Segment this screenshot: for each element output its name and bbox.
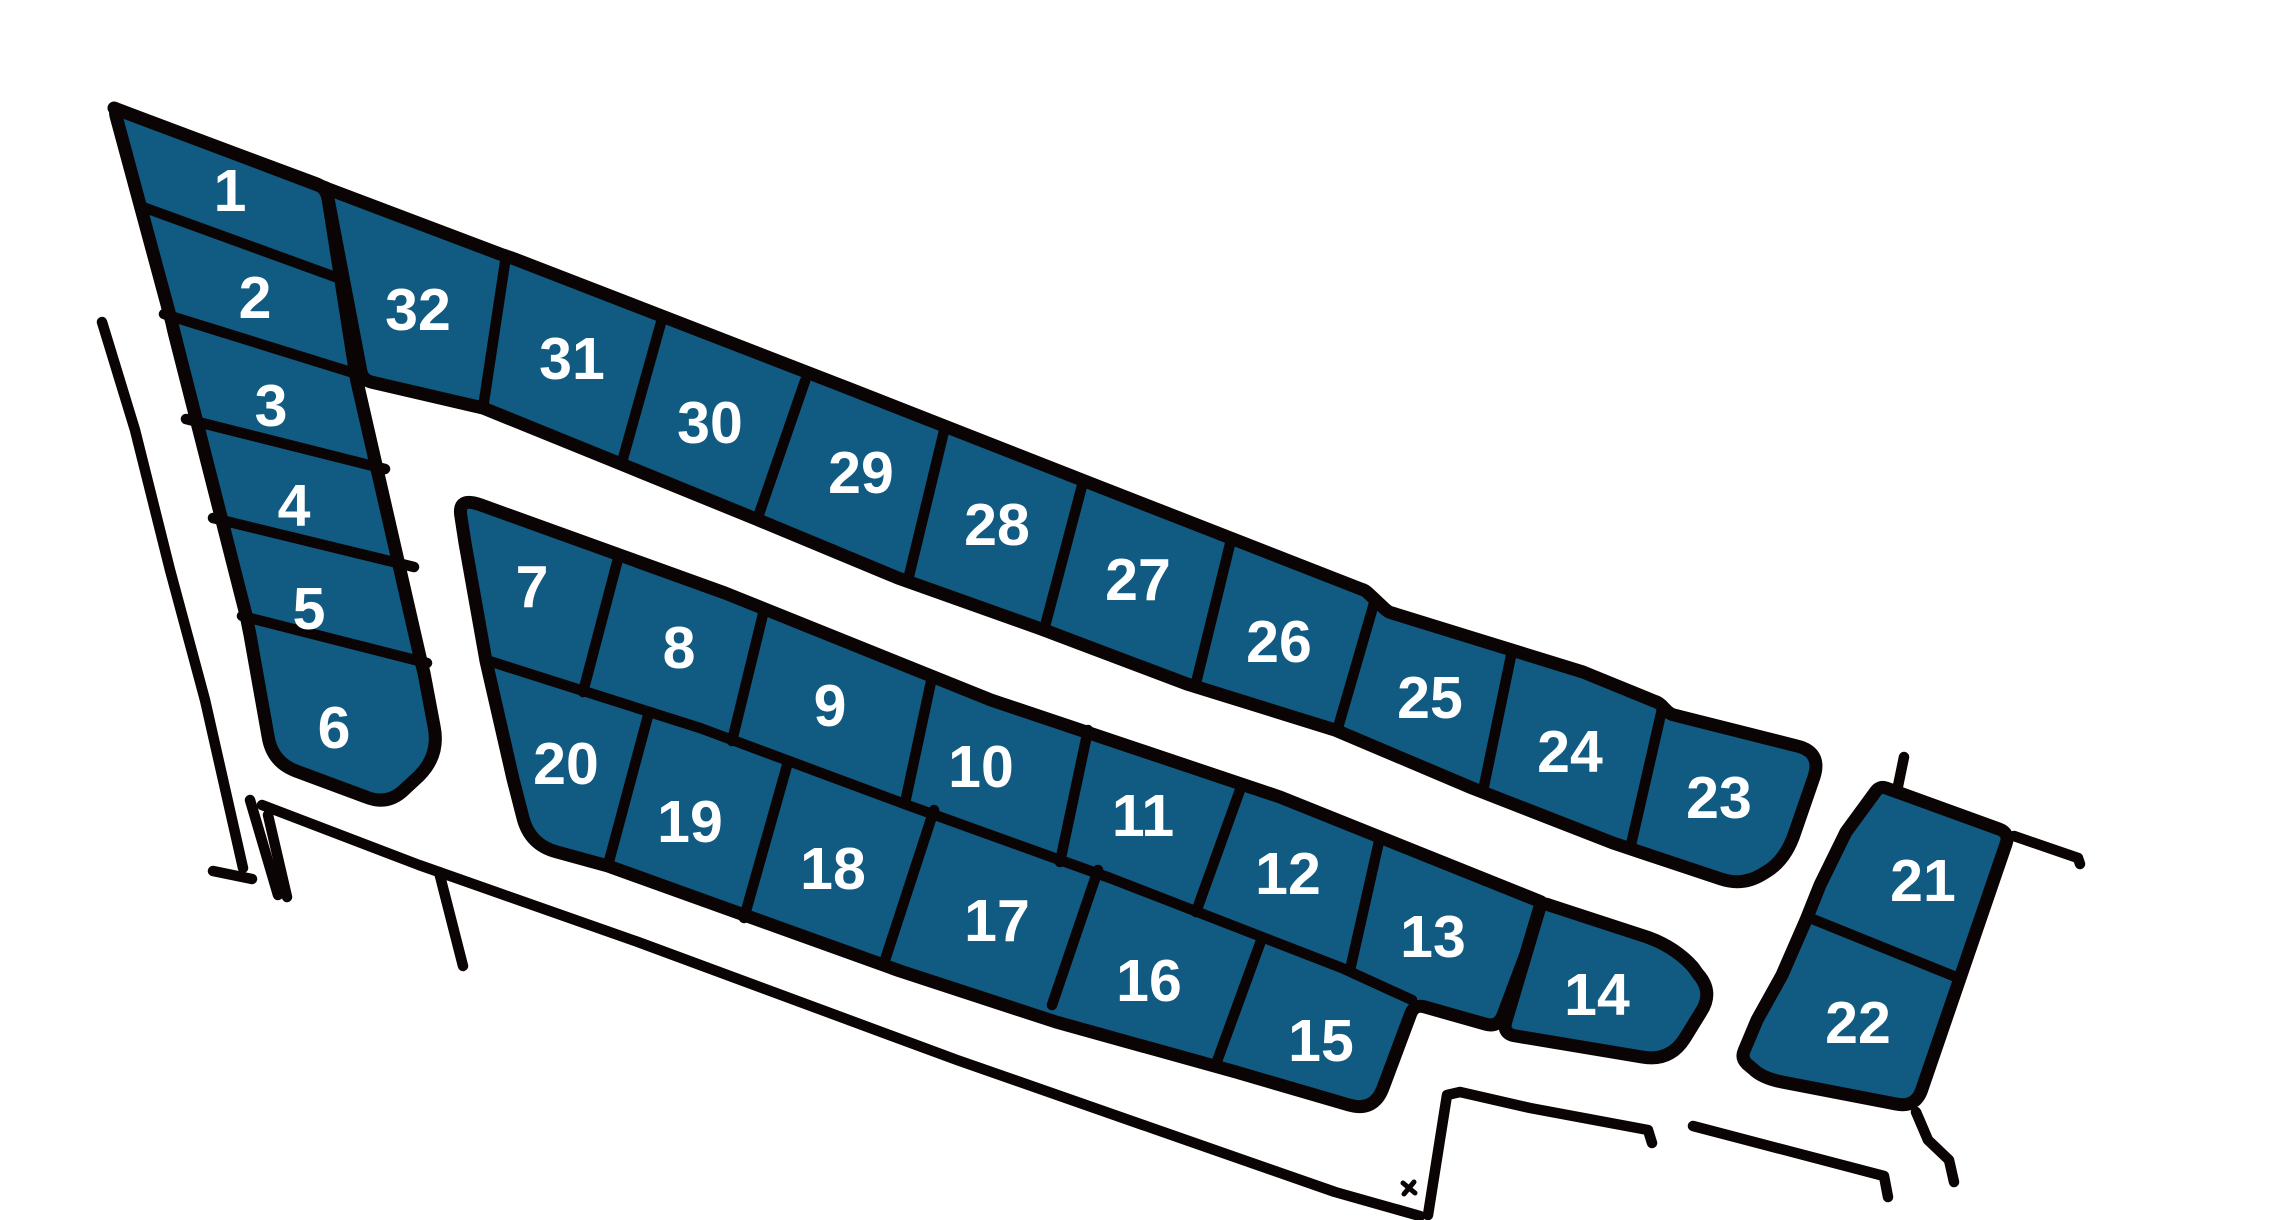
svg-text:26: 26 bbox=[1246, 609, 1312, 675]
svg-text:29: 29 bbox=[828, 440, 894, 506]
svg-text:22: 22 bbox=[1825, 990, 1891, 1056]
svg-text:7: 7 bbox=[516, 554, 549, 620]
svg-text:18: 18 bbox=[800, 836, 866, 902]
svg-text:17: 17 bbox=[964, 888, 1030, 954]
svg-text:6: 6 bbox=[318, 695, 351, 761]
svg-text:11: 11 bbox=[1112, 783, 1174, 849]
svg-text:12: 12 bbox=[1255, 841, 1321, 907]
svg-text:1: 1 bbox=[214, 158, 247, 224]
svg-text:3: 3 bbox=[255, 373, 288, 439]
svg-text:24: 24 bbox=[1537, 719, 1603, 785]
svg-text:10: 10 bbox=[948, 734, 1014, 800]
svg-text:2: 2 bbox=[239, 265, 272, 331]
svg-text:31: 31 bbox=[539, 326, 605, 392]
svg-text:15: 15 bbox=[1288, 1008, 1354, 1074]
svg-text:21: 21 bbox=[1890, 848, 1956, 914]
svg-text:14: 14 bbox=[1564, 962, 1630, 1028]
svg-text:20: 20 bbox=[533, 731, 599, 797]
svg-text:30: 30 bbox=[677, 390, 743, 456]
svg-text:19: 19 bbox=[657, 789, 723, 855]
svg-text:25: 25 bbox=[1397, 665, 1463, 731]
svg-text:8: 8 bbox=[663, 615, 696, 681]
svg-text:13: 13 bbox=[1400, 904, 1466, 970]
svg-text:27: 27 bbox=[1105, 547, 1171, 613]
svg-text:32: 32 bbox=[385, 277, 451, 343]
svg-text:23: 23 bbox=[1686, 765, 1752, 831]
svg-text:4: 4 bbox=[278, 473, 311, 539]
svg-text:28: 28 bbox=[964, 492, 1030, 558]
svg-text:5: 5 bbox=[293, 576, 326, 642]
svg-text:9: 9 bbox=[814, 673, 847, 739]
svg-text:16: 16 bbox=[1116, 948, 1182, 1014]
